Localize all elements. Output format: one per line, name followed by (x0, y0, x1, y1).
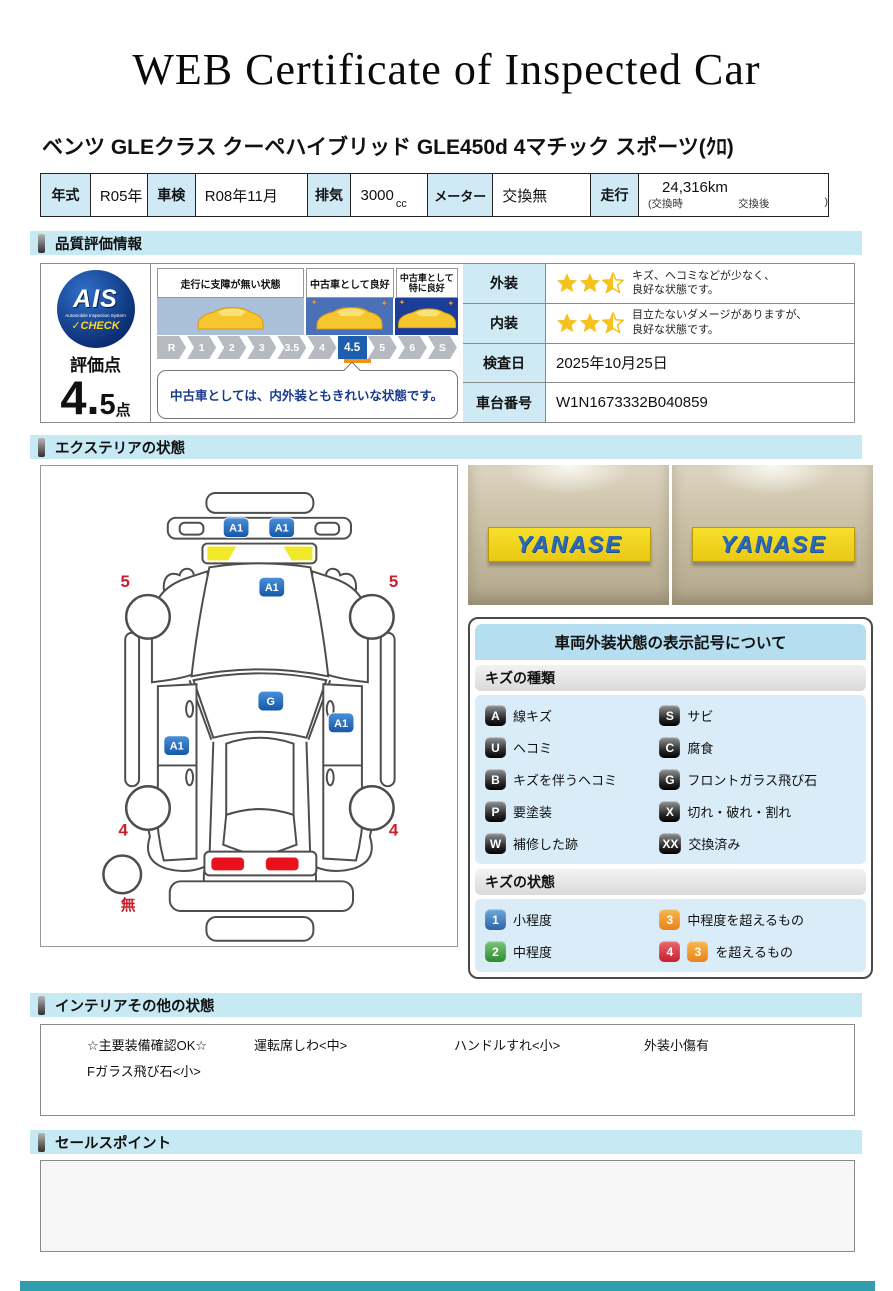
grade-chart: 走行に支障が無い状態 中古車として良好 中古車として 特に良好 ✦ ✦ (151, 264, 463, 422)
section-accent-bar (38, 996, 45, 1015)
legend-kind-items: A線キズ Sサビ Uヘコミ C腐食 Bキズを伴うヘコミ Gフロントガラス飛び石 … (475, 695, 866, 864)
legend-item: 1小程度 (485, 909, 659, 930)
ais-logo-subtext: Automobile Inspection System (65, 313, 126, 318)
tire-depth-front-left: 5 (121, 572, 130, 591)
legend-item-label: ヘコミ (513, 738, 552, 757)
interior-rating-text-line2: 良好な状態です。 (632, 324, 719, 336)
sparkle-icon: ✦ (381, 299, 388, 308)
sparkle-icon: ✦ (448, 299, 455, 308)
ais-logo-text: AIS (73, 287, 118, 312)
star-rating-icon (556, 272, 624, 294)
vin-value: W1N1673332B040859 (546, 383, 854, 422)
zone-3: ✦ ✦ (395, 298, 458, 335)
sparkle-icon: ✦ (399, 298, 406, 307)
tire-depth-rear-left: 4 (119, 821, 129, 840)
legend-item-label: 切れ・破れ・割れ (687, 802, 791, 821)
exterior-rating-text-line2: 良好な状態です。 (632, 284, 719, 296)
legend-item: 43を超えるもの (659, 941, 856, 962)
displacement-unit: cc (396, 198, 407, 210)
legend-item-label: 線キズ (513, 706, 552, 725)
table-row-exterior: 外装 キズ、ヘコミなどが少なく、 良好な状態です。 (463, 264, 854, 304)
tire-depth-front-right: 5 (389, 572, 398, 591)
section-title-interior: インテリアその他の状態 (55, 995, 215, 1016)
interior-rating-label: 内装 (463, 304, 546, 343)
interior-rating-text: 目立たないダメージがありますが、 良好な状態です。 (632, 308, 807, 338)
car-damage-diagram: A1 A1 A1 G A1 A1 5 5 4 4 無 (40, 465, 458, 947)
badge-XX: XX (659, 833, 681, 854)
spec-table: 年式 R05年 車検 R08年11月 排気 3000cc メーター 交換無 走行… (40, 173, 829, 217)
legend-kind-header: キズの種類 (475, 665, 866, 691)
grade-r: R (157, 336, 186, 359)
legend-item: Uヘコミ (485, 737, 659, 758)
grade-zone-labels: 走行に支障が無い状態 中古車として良好 中古車として 特に良好 (157, 268, 458, 298)
star-rating-icon (556, 312, 624, 334)
table-row-inspection-date: 検査日 2025年10月25日 (463, 344, 854, 384)
zone-label-3-line2: 特に良好 (409, 283, 445, 293)
table-row-vin: 車台番号 W1N1673332B040859 (463, 383, 854, 422)
legend-item-label: 要塗装 (513, 802, 552, 821)
vehicle-name: ベンツ GLEクラス クーペハイブリッド GLE450d 4マチック スポーツ(… (42, 131, 893, 161)
spec-year-label: 年式 (41, 174, 91, 216)
interior-notes-box: ☆主要装備確認OK☆ 運転席しわ<中> ハンドルすれ<小> 外装小傷有 Fガラス… (40, 1024, 855, 1116)
legend-item: 2中程度 (485, 941, 659, 962)
badge-P: P (485, 801, 506, 822)
vin-label: 車台番号 (463, 383, 546, 422)
spec-shaken-value: R08年11月 (196, 174, 308, 216)
zone-2: ✦ ✦ (306, 298, 393, 335)
inspection-date-value: 2025年10月25日 (546, 344, 854, 383)
grade-s: S (428, 336, 457, 359)
legend-item-label: を超えるもの (715, 942, 793, 961)
legend-item: P要塗装 (485, 801, 659, 822)
grade-3-5: 3.5 (277, 336, 306, 359)
zone-label-3: 中古車として 特に良好 (396, 268, 458, 298)
grade-4: 4 (307, 336, 336, 359)
section-header-exterior: エクステリアの状態 (30, 435, 862, 459)
exterior-rating-text: キズ、ヘコミなどが少なく、 良好な状態です。 (632, 269, 775, 299)
marker-front-bumper-left: A1 (229, 523, 243, 535)
spec-mileage-label: 走行 (591, 174, 639, 216)
section-header-interior: インテリアその他の状態 (30, 993, 862, 1017)
legend-item: X切れ・破れ・割れ (659, 801, 856, 822)
legend-item-label: サビ (687, 706, 713, 725)
sparkle-icon: ✦ (311, 298, 318, 307)
legend-item: A線キズ (485, 705, 659, 726)
spec-mileage-value: 24,316km (交換時 交換後 ) (639, 174, 828, 216)
section-accent-bar (38, 1133, 45, 1152)
table-row-interior: 内装 目立たないダメージがありますが、 良好な状態です。 (463, 304, 854, 344)
active-grade-underline (344, 359, 371, 363)
zone-1 (157, 298, 304, 335)
damage-legend: 車両外装状態の表示記号について キズの種類 A線キズ Sサビ Uヘコミ C腐食 … (468, 617, 873, 979)
grade-zone-band: ✦ ✦ ✦ ✦ (157, 298, 458, 335)
badge-C: C (659, 737, 680, 758)
marker-front-bumper-right: A1 (275, 523, 289, 535)
legend-item: Bキズを伴うヘコミ (485, 769, 659, 790)
badge-X: X (659, 801, 680, 822)
grade-scale: R 1 2 3 3.5 4 4.5 5 6 S (157, 336, 458, 359)
ais-logo: AIS Automobile Inspection System ✓CHECK (57, 270, 135, 348)
legend-item-label: 小程度 (513, 910, 552, 929)
tire-depth-rear-right: 4 (389, 821, 399, 840)
car-icon (313, 303, 385, 333)
badge-G: G (659, 769, 680, 790)
grade-3: 3 (247, 336, 276, 359)
grade-1: 1 (187, 336, 216, 359)
vehicle-photo-2: YANASE (672, 465, 873, 605)
badge-level-3: 3 (659, 909, 680, 930)
interior-note: 外装小傷有 (644, 1035, 842, 1054)
mileage-note-open: (交換時 (648, 196, 683, 211)
displacement-number: 3000 (360, 187, 393, 204)
interior-note: ☆主要装備確認OK☆ (87, 1035, 254, 1054)
legend-item: XX交換済み (659, 833, 856, 854)
grade-2: 2 (217, 336, 246, 359)
legend-item: Gフロントガラス飛び石 (659, 769, 856, 790)
ais-panel: AIS Automobile Inspection System ✓CHECK … (41, 264, 151, 422)
legend-state-items: 1小程度 3中程度を超えるもの 2中程度 43を超えるもの (475, 899, 866, 972)
quality-detail-table: 外装 キズ、ヘコミなどが少なく、 良好な状態です。 内装 (463, 264, 854, 422)
legend-item-label: フロントガラス飛び石 (687, 770, 817, 789)
score-sub: 5 (100, 394, 116, 417)
score-unit: 点 (116, 405, 131, 417)
yanase-sign-text: YANASE (720, 531, 826, 558)
legend-item-label: 腐食 (687, 738, 713, 757)
zone-label-2: 中古車として良好 (306, 268, 394, 298)
mileage-note-mid: 交換後 (738, 196, 770, 211)
marker-right-door: A1 (334, 718, 348, 730)
yanase-sign: YANASE (692, 527, 855, 562)
main-title: WEB Certificate of Inspected Car (0, 44, 893, 95)
car-top-view-diagram: A1 A1 A1 G A1 A1 5 5 4 4 無 (41, 466, 457, 946)
interior-rating-text-line1: 目立たないダメージがありますが、 (632, 309, 807, 321)
marker-left-rear-door: A1 (170, 741, 184, 753)
badge-W: W (485, 833, 506, 854)
badge-U: U (485, 737, 506, 758)
section-title-exterior: エクステリアの状態 (55, 437, 185, 458)
vehicle-photo-1: YANASE (468, 465, 669, 605)
score-main: 4. (60, 380, 99, 417)
marker-hood: A1 (265, 582, 279, 594)
interior-note: Fガラス飛び石<小> (87, 1064, 201, 1079)
grade-comment-text: 中古車としては、内外装ともきれいな状態です。 (170, 385, 443, 404)
badge-S: S (659, 705, 680, 726)
legend-item-label: 補修した跡 (513, 834, 578, 853)
section-title-sales: セールスポイント (55, 1132, 171, 1153)
spec-shaken-label: 車検 (148, 174, 196, 216)
zone-label-3-line1: 中古車として (400, 273, 454, 283)
ais-check-icon: ✓CHECK (71, 319, 119, 332)
legend-item: W補修した跡 (485, 833, 659, 854)
footer-bar (20, 1281, 875, 1291)
car-icon (194, 303, 266, 333)
legend-item: C腐食 (659, 737, 856, 758)
legend-state-header: キズの状態 (475, 869, 866, 895)
section-accent-bar (38, 438, 45, 457)
vehicle-photos: YANASE YANASE (468, 465, 873, 605)
inspection-date-label: 検査日 (463, 344, 546, 383)
section-header-quality: 品質評価情報 (30, 231, 862, 255)
spec-displacement-label: 排気 (308, 174, 352, 216)
exterior-rating-label: 外装 (463, 264, 546, 303)
legend-item: Sサビ (659, 705, 856, 726)
sales-point-box (40, 1160, 855, 1252)
grade-5: 5 (368, 336, 397, 359)
legend-item-label: 交換済み (688, 834, 740, 853)
badge-level-3: 3 (687, 941, 708, 962)
spare-tire-label: 無 (121, 896, 136, 914)
score-value: 4. 5 点 (60, 380, 130, 417)
legend-item: 3中程度を超えるもの (659, 909, 856, 930)
mileage-note-close: ) (825, 196, 829, 211)
exterior-rating-text-line1: キズ、ヘコミなどが少なく、 (632, 270, 775, 282)
yanase-sign-text: YANASE (516, 531, 622, 558)
legend-item-label: キズを伴うヘコミ (513, 770, 617, 789)
interior-note: ハンドルすれ<小> (454, 1035, 644, 1054)
legend-item-label: 中程度 (513, 942, 552, 961)
section-header-sales: セールスポイント (30, 1130, 862, 1154)
badge-B: B (485, 769, 506, 790)
grade-6: 6 (398, 336, 427, 359)
marker-windshield: G (267, 696, 275, 708)
quality-box: AIS Automobile Inspection System ✓CHECK … (40, 263, 855, 423)
yanase-sign: YANASE (488, 527, 651, 562)
spec-meter-label: メーター (428, 174, 493, 216)
grade-4-5-active: 4.5 (338, 336, 367, 359)
badge-A: A (485, 705, 506, 726)
badge-level-1: 1 (485, 909, 506, 930)
legend-title: 車両外装状態の表示記号について (475, 624, 866, 660)
badge-level-2: 2 (485, 941, 506, 962)
comment-caret (344, 362, 361, 379)
badge-level-4: 4 (659, 941, 680, 962)
interior-note: 運転席しわ<中> (254, 1035, 454, 1054)
grade-comment-box: 中古車としては、内外装ともきれいな状態です。 (157, 370, 458, 419)
spec-meter-value: 交換無 (493, 174, 591, 216)
section-accent-bar (38, 234, 45, 253)
mileage-number: 24,316km (662, 179, 728, 196)
spec-displacement-value: 3000cc (351, 174, 428, 216)
zone-label-1: 走行に支障が無い状態 (157, 268, 304, 298)
section-title-quality: 品質評価情報 (55, 233, 142, 254)
spec-year-value: R05年 (91, 174, 148, 216)
legend-item-label: 中程度を超えるもの (687, 910, 804, 929)
